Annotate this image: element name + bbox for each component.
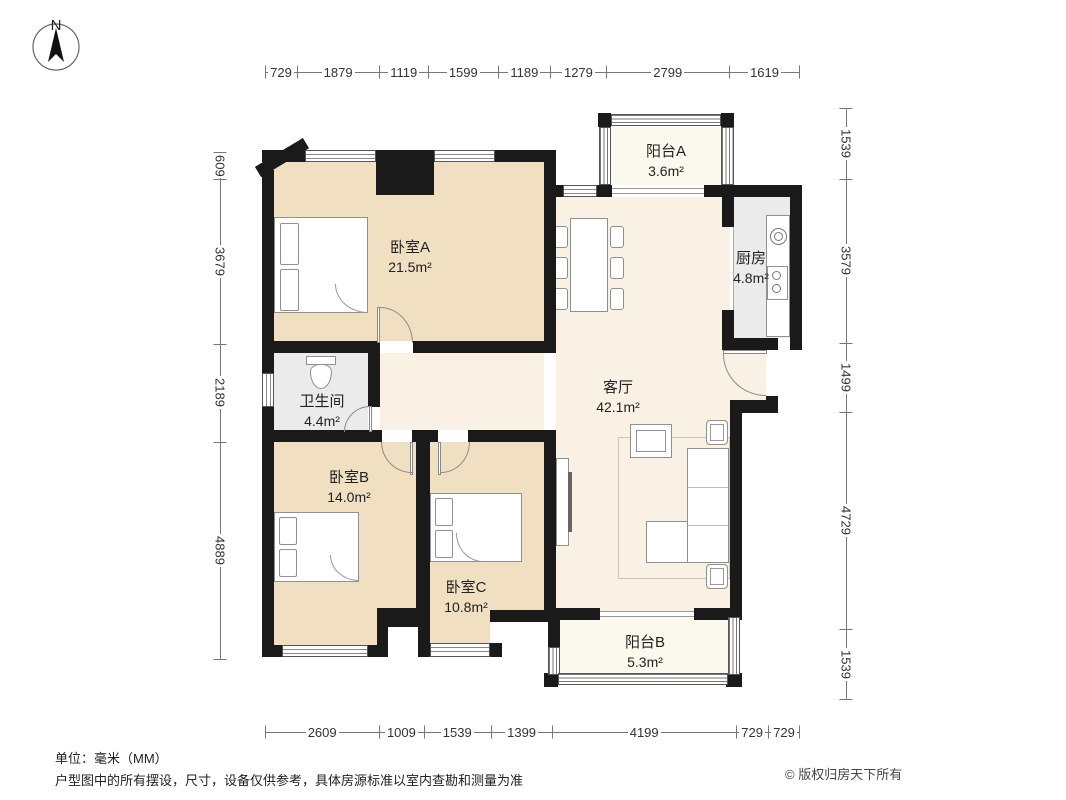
room-area: 21.5m² bbox=[388, 258, 432, 276]
dimension-value: 1119 bbox=[388, 65, 419, 80]
wall bbox=[376, 150, 434, 195]
room-area: 14.0m² bbox=[327, 488, 371, 506]
wall bbox=[416, 442, 430, 610]
dimension-tick bbox=[799, 726, 800, 739]
wall bbox=[544, 185, 563, 197]
window bbox=[262, 373, 274, 407]
dimension-tick bbox=[552, 726, 553, 739]
room-name: 阳台B bbox=[625, 633, 665, 653]
wall bbox=[730, 400, 778, 413]
dimension-segment: 1599 bbox=[428, 62, 498, 82]
dimension-value: 729 bbox=[268, 65, 294, 80]
wall bbox=[544, 673, 558, 687]
dining-chair bbox=[610, 288, 624, 310]
room-area: 10.8m² bbox=[444, 598, 488, 616]
dining-chair bbox=[610, 226, 624, 248]
floor-bedroom-c-bay bbox=[430, 612, 490, 643]
sink-drain bbox=[774, 232, 783, 241]
wall bbox=[790, 197, 802, 350]
dimension-value: 1879 bbox=[322, 65, 355, 80]
dimension-value: 2799 bbox=[651, 65, 684, 80]
dimension-value: 1539 bbox=[839, 127, 854, 160]
wall bbox=[704, 185, 722, 197]
wall bbox=[726, 673, 742, 687]
dimension-value: 1399 bbox=[505, 725, 538, 740]
dimension-segment: 1499 bbox=[836, 343, 856, 412]
dimension-segment: 1539 bbox=[836, 629, 856, 700]
dimension-tick bbox=[736, 726, 737, 739]
room-label-kitchen: 厨房 4.8m² bbox=[733, 249, 769, 287]
wall bbox=[722, 338, 778, 350]
armchair-seat bbox=[636, 430, 666, 452]
dimension-segment: 2189 bbox=[210, 344, 230, 442]
dimension-tick bbox=[840, 343, 853, 344]
north-arrow-icon: N bbox=[12, 4, 102, 84]
dimension-tick bbox=[265, 66, 266, 79]
wall bbox=[262, 170, 274, 657]
dimension-value: 1539 bbox=[839, 648, 854, 681]
sofa-chaise bbox=[646, 521, 688, 563]
dimension-segment: 4199 bbox=[552, 722, 736, 742]
wall bbox=[597, 185, 612, 197]
wall bbox=[412, 430, 430, 442]
dining-table bbox=[570, 218, 608, 312]
sliding-door-balcony-b bbox=[600, 611, 694, 617]
dining-chair bbox=[554, 288, 568, 310]
unit-note: 单位：毫米（MM） bbox=[55, 748, 168, 767]
room-area: 42.1m² bbox=[596, 398, 640, 416]
room-label-bedroom-b: 卧室B 14.0m² bbox=[327, 468, 371, 506]
dimension-value: 2609 bbox=[306, 725, 339, 740]
room-label-bedroom-c: 卧室C 10.8m² bbox=[444, 578, 488, 616]
dimension-tick bbox=[214, 659, 227, 660]
dimension-column-right: 15393579149947291539 bbox=[836, 108, 856, 700]
dimension-tick bbox=[840, 629, 853, 630]
dimension-tick bbox=[424, 726, 425, 739]
wall bbox=[722, 185, 802, 197]
disclaimer-text: 户型图中的所有摆设，尺寸，设备仅供参考，具体房源标准以室内查勘和测量为准 bbox=[55, 770, 523, 789]
wall bbox=[722, 310, 734, 338]
wall-niche bbox=[388, 627, 418, 657]
dimension-segment: 729 bbox=[265, 62, 297, 82]
dimension-value: 1189 bbox=[508, 65, 540, 80]
room-name: 卧室B bbox=[327, 468, 371, 488]
dimension-row-bottom: 26091009153913994199729729 bbox=[265, 722, 800, 742]
room-area: 4.4m² bbox=[299, 412, 344, 430]
dimension-tick bbox=[799, 66, 800, 79]
pillow bbox=[279, 549, 297, 577]
dimension-column-left: 609367921894889 bbox=[210, 152, 230, 660]
dimension-segment: 1399 bbox=[491, 722, 552, 742]
dimension-value: 609 bbox=[213, 153, 228, 179]
dimension-tick bbox=[729, 66, 730, 79]
room-name: 客厅 bbox=[596, 378, 640, 398]
side-table bbox=[706, 420, 728, 445]
wall bbox=[721, 113, 734, 127]
balcony-window bbox=[599, 127, 611, 185]
wall bbox=[413, 341, 544, 353]
dimension-segment: 1879 bbox=[297, 62, 379, 82]
dimension-segment: 1189 bbox=[498, 62, 550, 82]
dimension-value: 1619 bbox=[748, 65, 781, 80]
balcony-window bbox=[721, 127, 734, 185]
dining-chair bbox=[554, 257, 568, 279]
room-area: 3.6m² bbox=[646, 162, 686, 180]
dimension-tick bbox=[214, 344, 227, 345]
window bbox=[305, 150, 376, 162]
dimension-value: 729 bbox=[739, 725, 765, 740]
wall bbox=[544, 430, 556, 620]
dimension-segment: 3579 bbox=[836, 179, 856, 343]
dimension-segment: 3679 bbox=[210, 179, 230, 343]
wall bbox=[730, 413, 742, 620]
dimension-segment: 2799 bbox=[606, 62, 729, 82]
room-label-living: 客厅 42.1m² bbox=[596, 378, 640, 416]
room-name: 厨房 bbox=[733, 249, 769, 269]
dimension-segment: 1119 bbox=[379, 62, 428, 82]
dimension-tick bbox=[840, 179, 853, 180]
room-label-balcony-b: 阳台B 5.3m² bbox=[625, 633, 665, 671]
room-name: 卧室A bbox=[388, 238, 432, 258]
wall bbox=[598, 113, 611, 127]
dimension-value: 2189 bbox=[213, 376, 228, 409]
dimension-tick bbox=[768, 726, 769, 739]
dimension-value: 1279 bbox=[562, 65, 595, 80]
dimension-segment: 729 bbox=[736, 722, 768, 742]
pillow bbox=[435, 530, 453, 558]
balcony-window bbox=[558, 673, 728, 685]
room-name: 卫生间 bbox=[299, 392, 344, 412]
wall bbox=[722, 197, 734, 227]
pillow bbox=[280, 223, 299, 265]
room-label-bathroom: 卫生间 4.4m² bbox=[299, 392, 344, 430]
dimension-segment: 1539 bbox=[836, 108, 856, 179]
dimension-value: 729 bbox=[771, 725, 797, 740]
dining-chair bbox=[610, 257, 624, 279]
wall bbox=[468, 430, 556, 442]
dimension-tick bbox=[840, 699, 853, 700]
dimension-segment: 1619 bbox=[729, 62, 800, 82]
balcony-window bbox=[728, 617, 740, 675]
dimension-tick bbox=[498, 66, 499, 79]
window bbox=[430, 643, 490, 657]
dimension-tick bbox=[428, 66, 429, 79]
dimension-value: 3579 bbox=[839, 244, 854, 277]
dimension-tick bbox=[379, 66, 380, 79]
wall bbox=[490, 610, 560, 622]
dimension-value: 1539 bbox=[441, 725, 474, 740]
balcony-window bbox=[611, 114, 721, 126]
dimension-tick bbox=[491, 726, 492, 739]
wall bbox=[368, 341, 380, 407]
balcony-window bbox=[548, 647, 560, 675]
wall bbox=[262, 645, 282, 657]
room-name: 卧室C bbox=[444, 578, 488, 598]
dimension-tick bbox=[265, 726, 266, 739]
wall bbox=[262, 341, 377, 353]
room-area: 5.3m² bbox=[625, 653, 665, 671]
pillow bbox=[279, 517, 297, 545]
dimension-tick bbox=[606, 66, 607, 79]
dimension-value: 4199 bbox=[628, 725, 661, 740]
wall bbox=[430, 430, 438, 442]
stove-burner bbox=[772, 284, 781, 293]
dimension-segment: 4729 bbox=[836, 412, 856, 629]
dimension-tick bbox=[214, 179, 227, 180]
dining-chair bbox=[554, 226, 568, 248]
wall bbox=[548, 620, 560, 647]
floor-plan: N bbox=[0, 0, 1066, 800]
dimension-value: 1599 bbox=[447, 65, 480, 80]
dimension-tick bbox=[214, 152, 227, 153]
side-table bbox=[706, 564, 728, 589]
dimension-tick bbox=[214, 442, 227, 443]
dimension-value: 1499 bbox=[839, 361, 854, 394]
dimension-segment: 609 bbox=[210, 152, 230, 179]
dimension-value: 1009 bbox=[385, 725, 418, 740]
floor-hallway bbox=[380, 353, 544, 430]
dimension-segment: 4889 bbox=[210, 442, 230, 661]
wall bbox=[544, 150, 556, 353]
dimension-segment: 1009 bbox=[379, 722, 423, 742]
dimension-value: 3679 bbox=[213, 245, 228, 278]
dimension-segment: 1539 bbox=[424, 722, 491, 742]
copyright-text: © 版权归房天下所有 bbox=[785, 764, 902, 783]
sliding-door-balcony-a bbox=[612, 188, 704, 194]
room-label-bedroom-a: 卧室A 21.5m² bbox=[388, 238, 432, 276]
dimension-tick bbox=[379, 726, 380, 739]
dimension-segment: 2609 bbox=[265, 722, 379, 742]
dimension-tick bbox=[297, 66, 298, 79]
wall bbox=[490, 643, 502, 657]
dimension-tick bbox=[840, 108, 853, 109]
dimension-value: 4729 bbox=[839, 504, 854, 537]
room-area: 4.8m² bbox=[733, 269, 769, 287]
stove-burner bbox=[772, 271, 781, 280]
window bbox=[282, 645, 368, 657]
wall bbox=[262, 150, 307, 162]
room-name: 阳台A bbox=[646, 142, 686, 162]
tv bbox=[568, 472, 572, 532]
dimension-tick bbox=[840, 412, 853, 413]
dimension-value: 4889 bbox=[213, 534, 228, 567]
dimension-tick bbox=[550, 66, 551, 79]
pillow bbox=[280, 269, 299, 311]
pillow bbox=[435, 498, 453, 526]
dimension-segment: 1279 bbox=[550, 62, 606, 82]
sofa bbox=[687, 448, 729, 563]
room-label-balcony-a: 阳台A 3.6m² bbox=[646, 142, 686, 180]
window bbox=[434, 150, 495, 162]
window bbox=[563, 185, 597, 197]
dimension-row-top: 7291879111915991189127927991619 bbox=[265, 62, 800, 82]
dimension-segment: 729 bbox=[768, 722, 800, 742]
